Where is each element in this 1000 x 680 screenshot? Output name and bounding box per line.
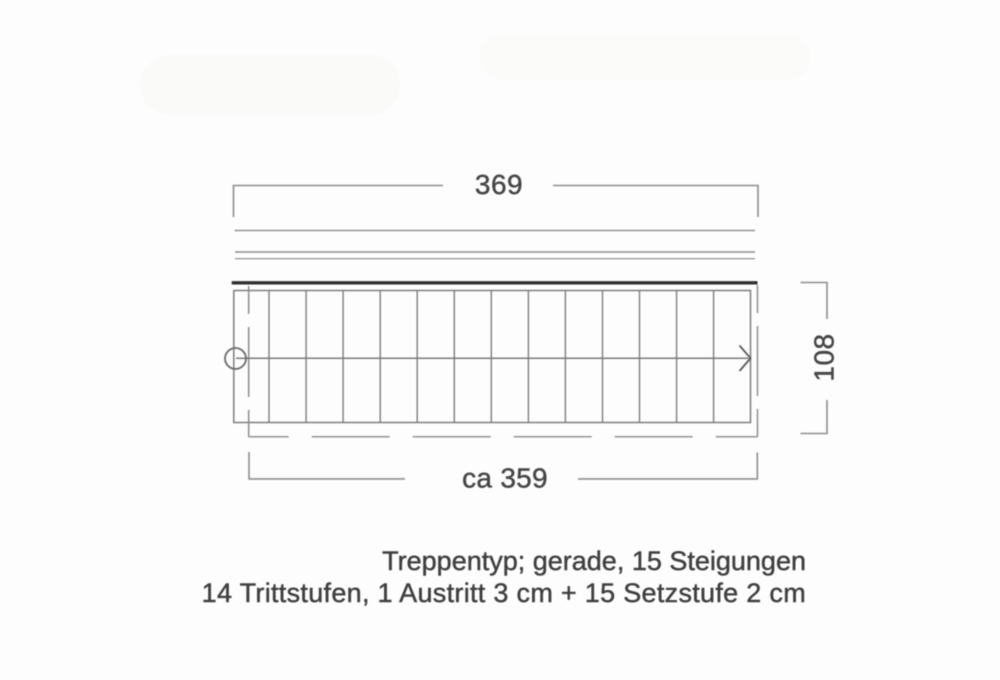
svg-text:ca 359: ca 359 xyxy=(462,463,548,494)
svg-text:369: 369 xyxy=(475,169,523,200)
svg-text:14 Trittstufen, 1 Austritt 3 c: 14 Trittstufen, 1 Austritt 3 cm + 15 Set… xyxy=(202,578,806,608)
svg-text:108: 108 xyxy=(809,333,840,381)
svg-text:Treppentyp; gerade, 15 Steigun: Treppentyp; gerade, 15 Steigungen xyxy=(382,546,806,576)
